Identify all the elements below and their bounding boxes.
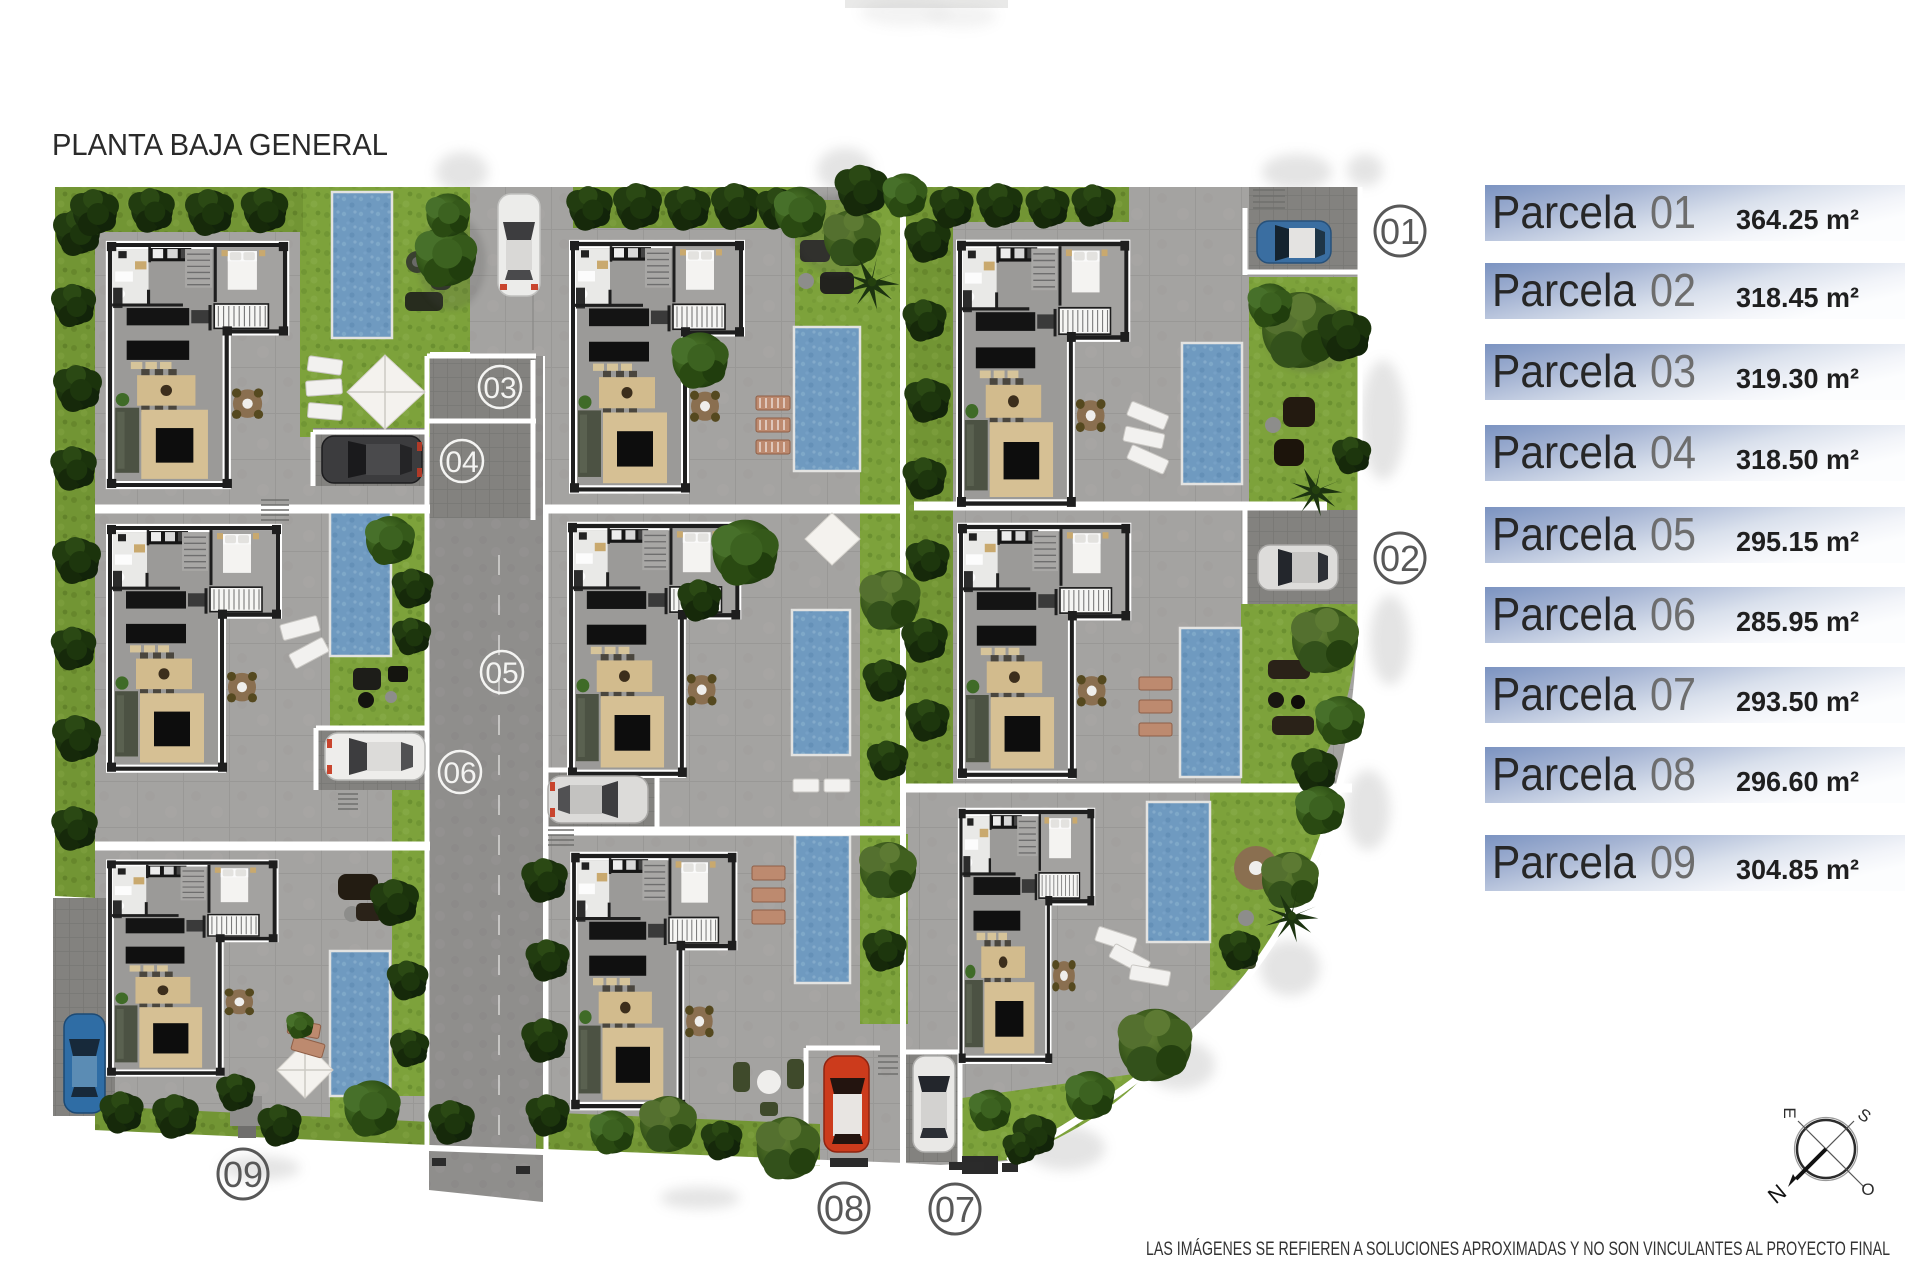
svg-text:02: 02 — [1650, 264, 1696, 316]
svg-text:296.60 m²: 296.60 m² — [1736, 766, 1859, 797]
svg-text:304.85 m²: 304.85 m² — [1736, 854, 1859, 885]
svg-text:04: 04 — [445, 446, 478, 479]
svg-text:LAS IMÁGENES SE REFIEREN A SOL: LAS IMÁGENES SE REFIEREN A SOLUCIONES AP… — [1146, 1239, 1890, 1260]
svg-text:Parcela: Parcela — [1492, 345, 1636, 397]
svg-text:318.45 m²: 318.45 m² — [1736, 282, 1859, 313]
svg-text:05: 05 — [1650, 508, 1696, 560]
svg-text:285.95 m²: 285.95 m² — [1736, 606, 1859, 637]
svg-text:09: 09 — [1650, 836, 1696, 888]
svg-text:07: 07 — [935, 1189, 975, 1230]
svg-text:319.30 m²: 319.30 m² — [1736, 363, 1859, 394]
svg-text:PLANTA BAJA GENERAL: PLANTA BAJA GENERAL — [52, 128, 388, 162]
svg-text:04: 04 — [1650, 426, 1696, 478]
svg-text:09: 09 — [223, 1154, 263, 1195]
svg-text:Parcela: Parcela — [1492, 748, 1636, 800]
svg-text:06: 06 — [1650, 588, 1696, 640]
svg-text:364.25 m²: 364.25 m² — [1736, 204, 1859, 235]
svg-text:Parcela: Parcela — [1492, 426, 1636, 478]
svg-text:293.50 m²: 293.50 m² — [1736, 686, 1859, 717]
svg-text:01: 01 — [1650, 186, 1696, 238]
svg-text:05: 05 — [485, 657, 518, 690]
svg-text:02: 02 — [1380, 538, 1420, 579]
svg-text:E: E — [1780, 1107, 1799, 1118]
svg-text:07: 07 — [1650, 668, 1696, 720]
svg-text:01: 01 — [1380, 211, 1420, 252]
svg-text:Parcela: Parcela — [1492, 508, 1636, 560]
svg-text:06: 06 — [443, 757, 476, 790]
svg-text:O: O — [1861, 1180, 1874, 1199]
svg-text:03: 03 — [1650, 345, 1696, 397]
svg-text:Parcela: Parcela — [1492, 588, 1636, 640]
svg-text:Parcela: Parcela — [1492, 264, 1636, 316]
svg-text:Parcela: Parcela — [1492, 668, 1636, 720]
svg-text:08: 08 — [1650, 748, 1696, 800]
svg-text:08: 08 — [824, 1188, 864, 1229]
svg-text:318.50 m²: 318.50 m² — [1736, 444, 1859, 475]
svg-text:03: 03 — [483, 372, 516, 405]
svg-text:295.15 m²: 295.15 m² — [1736, 526, 1859, 557]
svg-text:Parcela: Parcela — [1492, 186, 1636, 238]
svg-text:Parcela: Parcela — [1492, 836, 1636, 888]
